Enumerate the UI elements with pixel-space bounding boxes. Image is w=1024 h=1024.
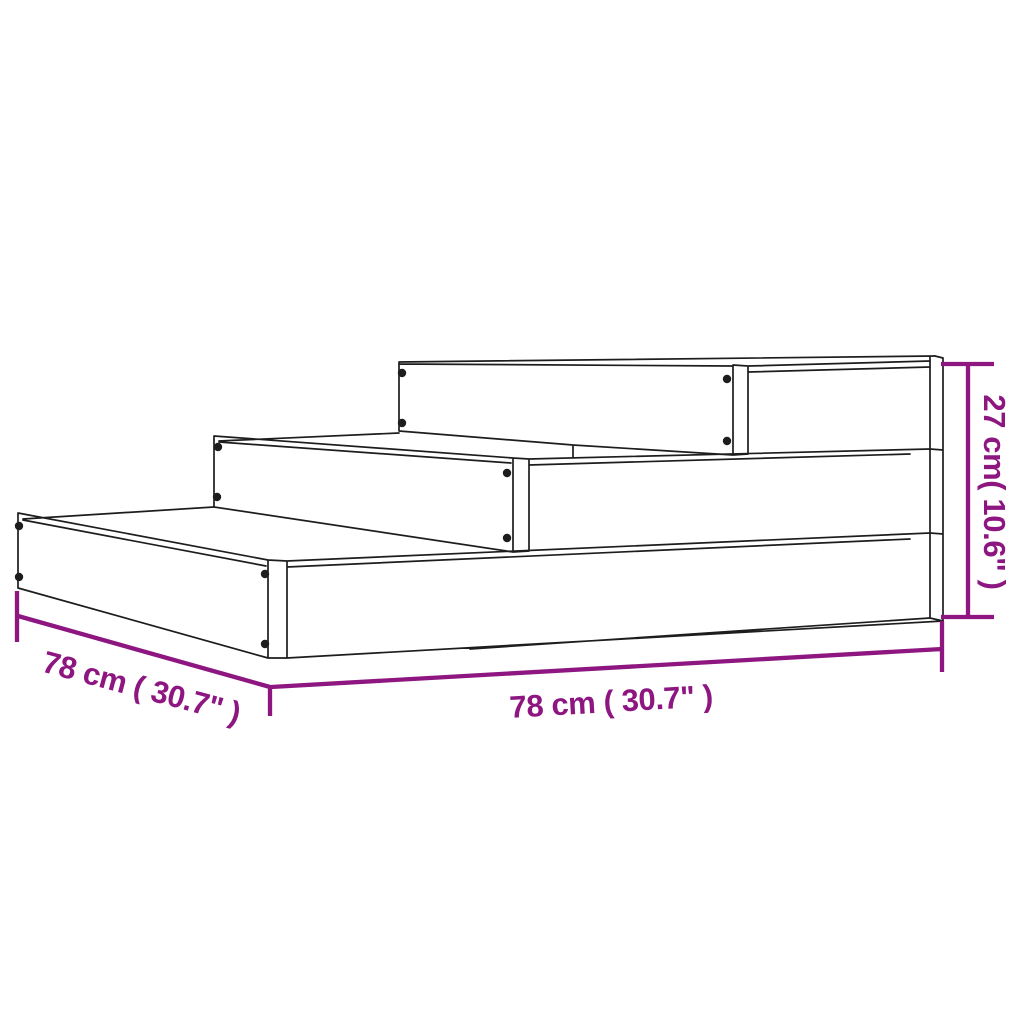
width-dimension-label: 78 cm ( 30.7" ): [509, 678, 714, 725]
right-end-strip: [930, 356, 943, 621]
product-dimension-image: 78 cm ( 30.7" ) 78 cm ( 30.7" ) 27 cm( 1…: [0, 0, 1024, 1024]
top-tier-outline: [399, 356, 935, 457]
screw-icon: [723, 375, 731, 383]
screws: [15, 369, 731, 648]
screw-icon: [213, 493, 221, 501]
depth-dimension-label: 78 cm ( 30.7" ): [39, 644, 245, 730]
screw-icon: [503, 469, 511, 477]
screw-icon: [261, 570, 269, 578]
screw-icon: [723, 437, 731, 445]
planter-drawing: [18, 356, 943, 658]
screw-icon: [15, 573, 23, 581]
screw-icon: [398, 419, 406, 427]
planter-dimension-diagram: 78 cm ( 30.7" ) 78 cm ( 30.7" ) 27 cm( 1…: [0, 0, 1024, 1024]
screw-icon: [214, 443, 222, 451]
height-dimension-label: 27 cm( 10.6" ): [977, 394, 1012, 589]
screw-icon: [15, 522, 23, 530]
dimension-labels: 78 cm ( 30.7" ) 78 cm ( 30.7" ) 27 cm( 1…: [39, 394, 1012, 730]
bottom-tier-outline: [18, 507, 943, 658]
screw-icon: [398, 369, 406, 377]
screw-icon: [503, 534, 511, 542]
screw-icon: [261, 640, 269, 648]
middle-tier-outline: [214, 433, 930, 552]
